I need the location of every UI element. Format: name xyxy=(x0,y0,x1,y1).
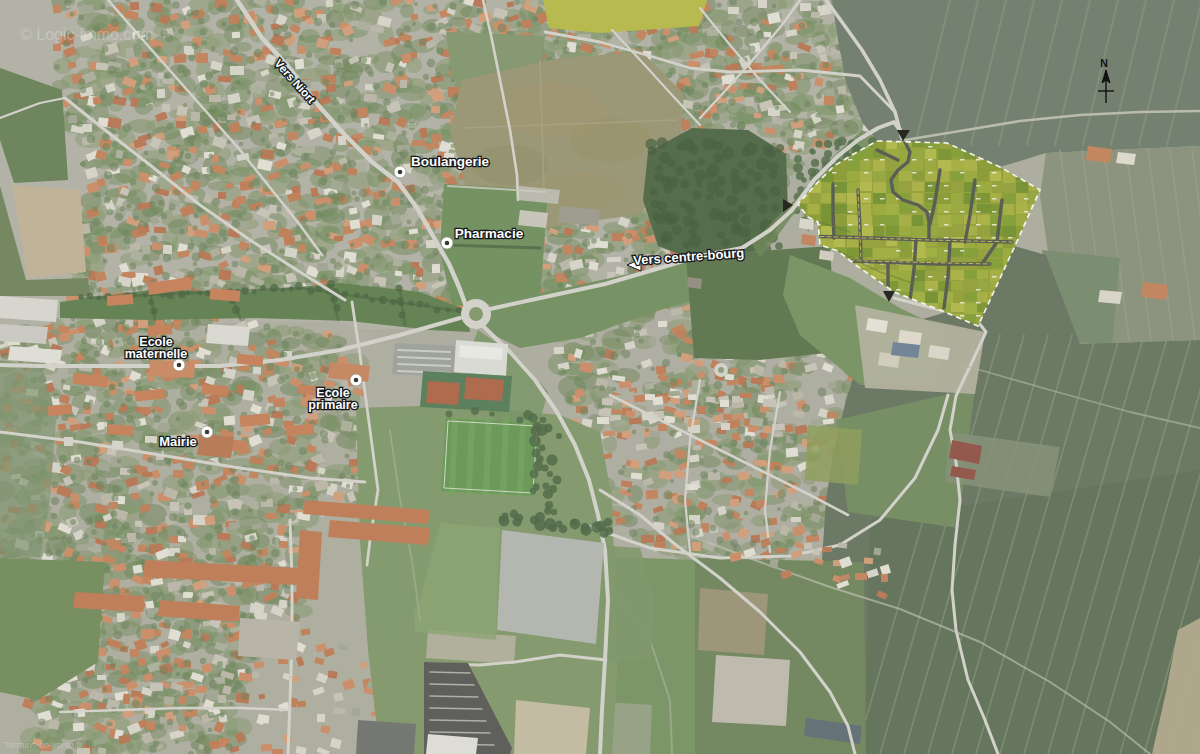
svg-text:Mairie: Mairie xyxy=(159,434,197,449)
svg-text:N: N xyxy=(1100,57,1108,69)
svg-text:Terrains-en-vente.fr: Terrains-en-vente.fr xyxy=(4,740,82,750)
svg-text:© Logic-immo.com: © Logic-immo.com xyxy=(20,26,154,43)
svg-text:Boulangerie: Boulangerie xyxy=(411,154,490,169)
svg-text:Pharmacie: Pharmacie xyxy=(455,226,524,241)
svg-text:primaire: primaire xyxy=(308,398,357,412)
